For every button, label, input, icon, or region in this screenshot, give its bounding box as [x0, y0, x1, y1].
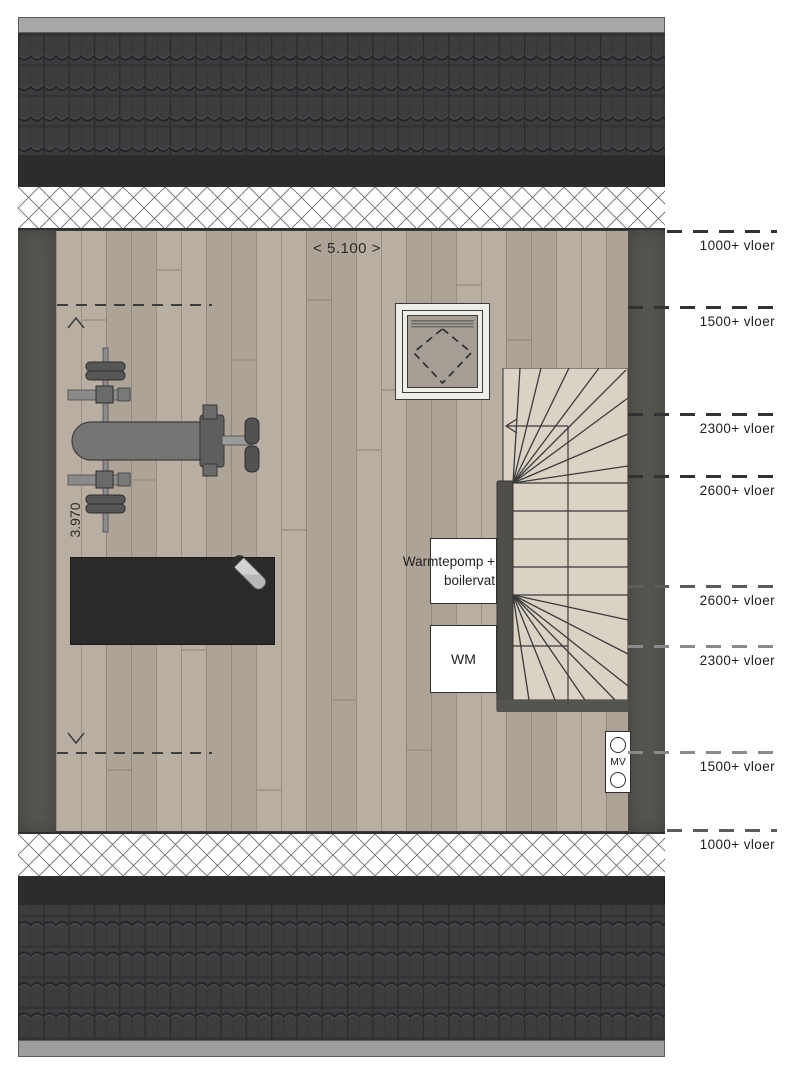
height-label-1: 1500+ vloer: [657, 314, 775, 329]
staircase: [495, 368, 665, 712]
roof-ridge-bottom: [18, 1040, 665, 1057]
wall-left: [18, 230, 56, 832]
height-line-0: [667, 230, 777, 233]
chevron-up-icon: [64, 314, 88, 330]
interior-height-line-top: [57, 304, 212, 306]
skylight-opening-symbol: [408, 316, 477, 387]
leg-roller-top: [245, 418, 259, 444]
height-line-4: [628, 585, 777, 588]
stairwell-bottom-wall: [497, 700, 628, 712]
height-line-2: [628, 413, 777, 416]
height-line-6: [628, 751, 777, 754]
roof-eave-top: [18, 155, 665, 185]
height-label-2: 2300+ vloer: [657, 421, 775, 436]
rack-crossbar-bottom: [68, 471, 130, 488]
bench-top-bracket: [203, 405, 217, 419]
bench-bottom-bracket: [203, 464, 217, 476]
mv-duct-circle-top: [610, 737, 626, 753]
barbell-plates-bottom: [86, 495, 125, 513]
height-line-5: [628, 645, 777, 648]
mv-label: MV: [606, 756, 630, 768]
height-label-3: 2600+ vloer: [657, 483, 775, 498]
height-label-7: 1000+ vloer: [657, 837, 775, 852]
height-label-5: 2300+ vloer: [657, 653, 775, 668]
interior-height-line-bottom: [57, 752, 212, 754]
heatpump-label-line2: boilervat: [377, 571, 495, 590]
height-label-6: 1500+ vloer: [657, 759, 775, 774]
weight-bench: [60, 340, 270, 540]
washing-machine: WM: [430, 625, 497, 693]
chevron-down-icon: [64, 731, 88, 747]
height-label-4: 2600+ vloer: [657, 593, 775, 608]
roof-eave-bottom: [18, 878, 665, 905]
barbell-plates-top: [86, 362, 125, 380]
floorplan-canvas: < 5.100 > 3.970: [0, 0, 805, 1080]
skylight-frame: [402, 310, 483, 393]
knee-wall-hatch-bottom: [18, 832, 665, 878]
roof-tiles-top: [18, 33, 665, 155]
heatpump-label: Warmtepomp + boilervat: [377, 552, 495, 590]
rack-crossbar-top: [68, 386, 130, 403]
leg-roller-bottom: [245, 446, 259, 472]
roof-ridge-top: [18, 17, 665, 33]
mv-unit: MV: [605, 731, 631, 793]
heatpump-label-line1: Warmtepomp +: [377, 552, 495, 571]
height-line-7: [667, 829, 777, 832]
knee-wall-hatch-top: [18, 185, 665, 230]
bench-head-block: [200, 415, 224, 467]
stair-newel-wall: [497, 481, 513, 712]
height-line-1: [628, 306, 777, 309]
height-line-3: [628, 475, 777, 478]
width-dimension-label: < 5.100 >: [292, 240, 402, 257]
mv-duct-circle-bottom: [610, 772, 626, 788]
washing-machine-label: WM: [451, 651, 476, 667]
height-label-0: 1000+ vloer: [657, 238, 775, 253]
skylight-glass: [407, 315, 478, 388]
roof-tiles-bottom: [18, 905, 665, 1040]
skylight-window: [395, 303, 490, 400]
